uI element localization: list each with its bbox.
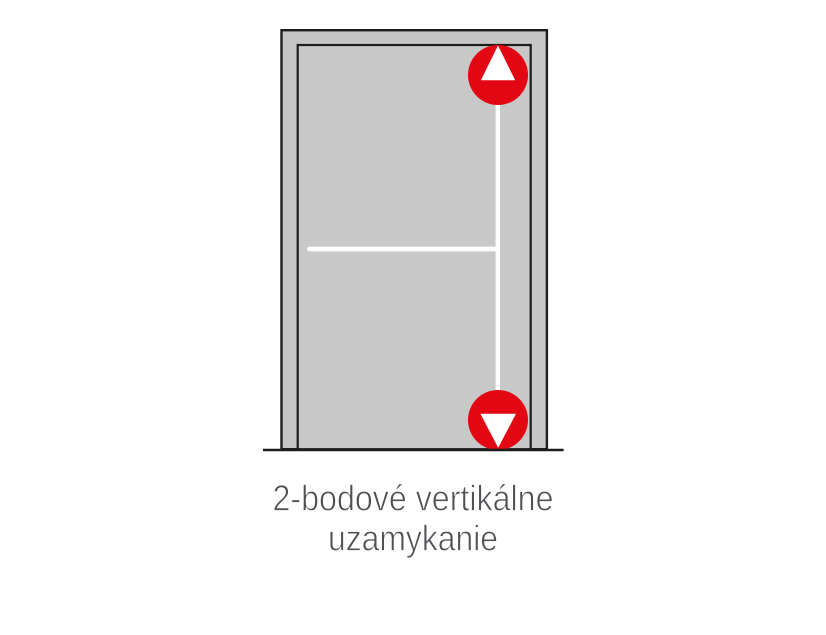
svg-text:2-bodové vertikálne: 2-bodové vertikálne [273,478,554,519]
svg-text:uzamykanie: uzamykanie [328,518,498,559]
